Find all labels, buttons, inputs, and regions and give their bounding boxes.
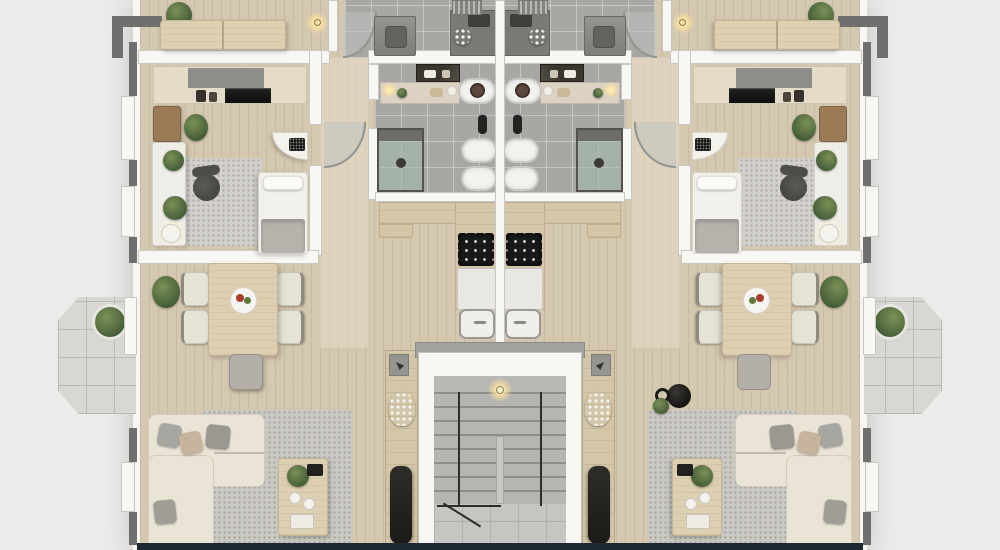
exterior-wall-trim	[863, 160, 871, 186]
floor-plan-scene	[0, 0, 1000, 550]
stair-center-divider	[496, 436, 504, 504]
sofa-pillow-gray	[769, 424, 795, 450]
sofa-pillow-gray	[205, 424, 231, 450]
towel-roll	[543, 86, 553, 96]
washer-door	[385, 26, 407, 48]
dining-chair	[696, 310, 724, 344]
wall	[309, 165, 322, 256]
window-bay	[121, 462, 135, 512]
vanity-plant	[397, 88, 407, 98]
exterior-wall-trim	[129, 428, 137, 462]
balcony-plant-pot	[872, 304, 908, 340]
magazine	[686, 514, 710, 529]
shower-head	[594, 158, 604, 168]
entry-tall-panel	[588, 466, 610, 544]
laptop	[695, 138, 711, 151]
dining-chair	[791, 272, 819, 306]
entry-shelf-flowers	[585, 392, 611, 426]
exterior-wall-trim	[129, 160, 137, 186]
bed-blanket	[261, 219, 305, 253]
coffee-table-plant	[287, 465, 309, 487]
door-sign-plate	[591, 354, 611, 376]
kitchen-cabinet	[587, 224, 621, 238]
bowl	[699, 492, 711, 504]
kettle	[209, 92, 217, 102]
sofa-pillow-gray	[823, 499, 847, 525]
laptop	[289, 138, 305, 151]
exterior-wall-trim	[863, 428, 871, 462]
stairwell-light-bulb	[496, 386, 504, 394]
vanity-mirror	[540, 64, 584, 82]
exterior-wall-trim	[863, 512, 871, 545]
door-sign-plate	[389, 354, 409, 376]
dining-chair	[276, 310, 304, 344]
cooktop	[506, 233, 542, 266]
bidet	[503, 166, 539, 191]
corner-parapet	[112, 16, 123, 58]
wall	[375, 192, 497, 202]
sofa-seam	[214, 452, 264, 454]
wall	[662, 0, 672, 52]
utility-tray	[510, 14, 532, 27]
office-chair-seat	[193, 174, 220, 201]
single-bed	[258, 172, 308, 254]
office-chair-seat	[780, 174, 807, 201]
drying-rack	[452, 0, 482, 15]
dining-plant	[152, 276, 180, 308]
shelf-item	[550, 70, 558, 78]
kitchen-sink	[459, 309, 495, 339]
balcony-door	[863, 297, 876, 355]
food	[756, 294, 764, 302]
vanity-lamp	[381, 82, 397, 98]
exterior-wall-trim	[863, 42, 871, 96]
door-sign-glyph	[396, 362, 404, 370]
coffee-table	[672, 458, 722, 536]
hallway-floor-highlight	[320, 58, 368, 348]
vanity-lamp	[603, 82, 619, 98]
toilet	[503, 138, 539, 163]
window-bay	[865, 96, 879, 160]
coffee-table-plant	[691, 465, 713, 487]
kitchen-counter-white	[457, 268, 497, 310]
kitchenette-cooktop	[729, 88, 775, 103]
tub-caddy	[515, 83, 530, 98]
toilet-brush	[478, 115, 487, 134]
kettle	[783, 92, 791, 102]
entry-shelf-flowers	[389, 392, 415, 426]
plant	[792, 114, 816, 141]
bowl	[685, 498, 697, 510]
corner-parapet	[877, 16, 888, 58]
shower-top-bar	[379, 130, 422, 141]
washing-machine	[374, 16, 416, 56]
faucet	[514, 321, 526, 324]
sofa-pillow-gray	[153, 499, 177, 525]
food	[244, 297, 251, 304]
shower-top-bar	[578, 130, 621, 141]
balcony-door	[124, 297, 137, 355]
tub-caddy	[470, 83, 485, 98]
counter-gray-mat	[736, 68, 812, 88]
food-plate	[743, 287, 770, 314]
wall	[138, 50, 330, 64]
entry-tall-panel	[390, 466, 412, 544]
single-bed	[692, 172, 742, 254]
stair-railing	[540, 392, 542, 506]
towel-stack	[424, 70, 436, 78]
bar-cabinet	[819, 106, 847, 142]
kettle-floor-decor	[655, 378, 699, 412]
kitchenette-cooktop	[225, 88, 271, 103]
kitchen-cabinet	[379, 224, 413, 238]
washing-machine	[584, 16, 626, 56]
toilet	[461, 138, 497, 163]
bed-blanket	[695, 219, 739, 253]
wall	[678, 50, 691, 125]
wall	[621, 64, 632, 100]
console-plant	[163, 196, 187, 220]
dining-stool	[229, 354, 263, 390]
sofa-seam	[736, 452, 786, 454]
utility-flowers	[454, 28, 471, 45]
bowl	[289, 492, 301, 504]
exterior-wall-trim	[863, 237, 871, 263]
towel-stack	[564, 70, 576, 78]
decor-box	[677, 464, 693, 476]
console-plant	[163, 150, 184, 171]
counter-gray-mat	[188, 68, 264, 88]
window-bay	[865, 186, 879, 237]
balcony-plant-pot	[92, 304, 128, 340]
soap-tray	[557, 88, 570, 97]
food-plate	[230, 287, 257, 314]
vanity-mirror	[416, 64, 460, 82]
table-lamp	[161, 224, 181, 243]
kitchen-counter-white	[503, 268, 543, 310]
utility-flowers	[529, 28, 546, 45]
wall	[678, 165, 691, 256]
sofa-pillow-tan	[796, 430, 822, 456]
window-bay	[865, 462, 879, 512]
sofa-pillow-gray	[817, 422, 844, 449]
faucet	[474, 321, 486, 324]
door-sign-glyph	[596, 362, 604, 370]
shower-enclosure	[576, 128, 623, 192]
wall	[670, 50, 862, 64]
pendant-lamp-bulb	[314, 19, 321, 26]
sprout-plant	[653, 398, 669, 414]
dining-stool	[737, 354, 771, 390]
coffee-table	[278, 458, 328, 536]
console-plant	[813, 196, 837, 220]
shower-enclosure	[377, 128, 424, 192]
kettle-body	[667, 384, 691, 408]
table-lamp	[819, 224, 839, 243]
wall	[309, 50, 322, 125]
console-plant	[816, 150, 837, 171]
pendant-lamp-bulb	[679, 19, 686, 26]
bar-cabinet	[153, 106, 181, 142]
dining-chair	[181, 310, 209, 344]
drying-rack	[518, 0, 548, 15]
magazine	[290, 514, 314, 529]
plant	[184, 114, 208, 141]
washer-door	[593, 26, 615, 48]
food	[236, 294, 244, 302]
dining-chair	[696, 272, 724, 306]
utility-tray	[468, 14, 490, 27]
bed-split-line	[222, 21, 224, 49]
dining-chair	[276, 272, 304, 306]
bed-pillow	[697, 176, 737, 190]
shelf-item	[442, 70, 450, 78]
dining-chair	[181, 272, 209, 306]
toilet-brush	[513, 115, 522, 134]
building-base-strip	[137, 543, 863, 550]
decor-box	[307, 464, 323, 476]
wall	[368, 64, 379, 100]
stair-railing	[458, 392, 460, 506]
sofa-pillow-tan	[178, 430, 204, 456]
dining-chair	[791, 310, 819, 344]
window-bay	[121, 96, 135, 160]
cooktop	[458, 233, 494, 266]
party-wall	[495, 0, 505, 348]
soap-tray	[430, 88, 443, 97]
hallway-floor-highlight	[632, 58, 680, 348]
wall	[328, 0, 338, 52]
exterior-wall-trim	[129, 512, 137, 545]
espresso-machine	[196, 90, 206, 102]
bed-split-line	[776, 21, 778, 49]
vanity-plant	[593, 88, 603, 98]
wall	[503, 192, 625, 202]
towel-roll	[447, 86, 457, 96]
kitchen-sink	[505, 309, 541, 339]
espresso-machine	[794, 90, 804, 102]
dining-table	[208, 263, 278, 356]
bidet	[461, 166, 497, 191]
exterior-wall-trim	[129, 42, 137, 96]
food	[749, 297, 756, 304]
bed-pillow	[263, 176, 303, 190]
dining-plant	[820, 276, 848, 308]
bowl	[303, 498, 315, 510]
shower-head	[396, 158, 406, 168]
exterior-wall-trim	[129, 237, 137, 263]
dining-table	[722, 263, 792, 356]
window-bay	[121, 186, 135, 237]
